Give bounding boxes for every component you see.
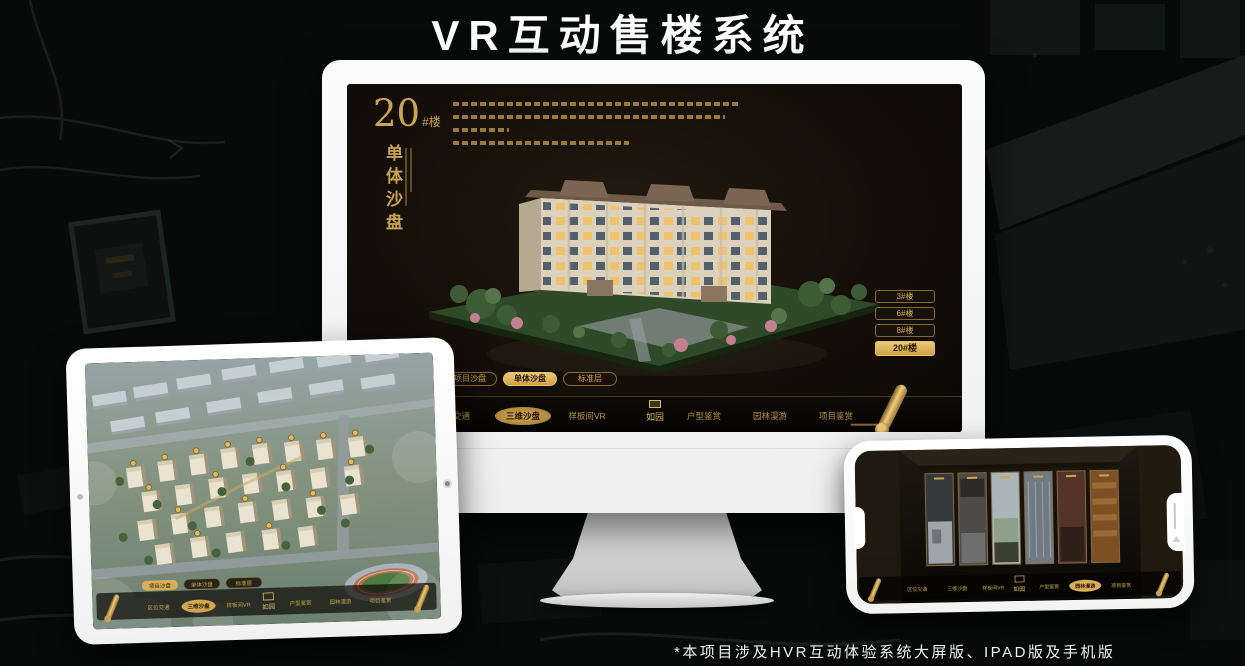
tablet-camera — [77, 494, 83, 500]
nav-item-3d-sandtable[interactable]: 三维沙盘 — [495, 407, 551, 425]
block-heading: 20#楼 — [373, 92, 441, 135]
page-title: VR互动售楼系统 — [0, 2, 1245, 63]
phone-nav-item-active[interactable]: 园林漫游 — [1075, 583, 1095, 590]
brand-logo: 如园 — [635, 400, 675, 423]
phone-nav-item[interactable]: 区位交通 — [907, 586, 927, 593]
footnote: *本项目涉及HVR互动体验系统大屏版、IPAD版及手机版 — [674, 641, 1115, 662]
phone-interior-view[interactable]: 区位交通 三维沙盘 样板间VR 如园 户型鉴赏 园林漫游 项目鉴赏 — [855, 445, 1184, 604]
floor-button-20[interactable]: 20#楼 — [875, 341, 935, 356]
tablet-screen: 项目沙盘 单体沙盘 标准层 区位交通 三维沙盘 样板间VR 如园 户型鉴赏 园林… — [85, 353, 441, 630]
brand-logo-text: 如园 — [646, 413, 664, 423]
description-text-lines — [453, 102, 745, 154]
poster: VR互动售楼系统 20#楼 单体沙盘 — [0, 0, 1245, 666]
phone-nav-item[interactable]: 项目鉴赏 — [1111, 582, 1131, 589]
scroll-icon — [877, 383, 909, 431]
phone-nav-item[interactable]: 样板间VR — [982, 584, 1004, 591]
nav-item-garden-roam[interactable]: 园林漫游 — [742, 407, 798, 425]
tablet-home-button[interactable] — [443, 479, 452, 488]
building-3d-model[interactable] — [419, 154, 889, 386]
nav-item-floorplans[interactable]: 户型鉴赏 — [676, 407, 732, 425]
ruyuan-seal-icon — [649, 400, 661, 408]
floor-button-3[interactable]: 3#楼 — [875, 290, 935, 303]
phone-nav-item[interactable]: 户型鉴赏 — [1039, 583, 1059, 590]
sand-table-tabs: 项目沙盘 单体沙盘 标准层 — [443, 372, 617, 386]
floor-selector: 3#楼 6#楼 8#楼 20#楼 — [875, 290, 939, 360]
block-subtitle-vertical: 单体沙盘 — [380, 144, 405, 236]
tablet-device: 项目沙盘 单体沙盘 标准层 区位交通 三维沙盘 样板间VR 如园 户型鉴赏 园林… — [65, 337, 462, 645]
phone-brand-logo: 如园 — [1013, 585, 1025, 593]
phone-nav-item[interactable]: 三维沙盘 — [947, 585, 967, 592]
nav-item-project-view[interactable]: 项目鉴赏 — [808, 407, 864, 425]
nav-item-showroom-vr[interactable]: 样板间VR — [559, 407, 615, 425]
block-number-suffix: #楼 — [422, 115, 441, 129]
decor-vertical-caption — [410, 148, 412, 192]
phone-device: 区位交通 三维沙盘 样板间VR 如园 户型鉴赏 园林漫游 项目鉴赏 — [843, 435, 1194, 615]
phone-screen: 区位交通 三维沙盘 样板间VR 如园 户型鉴赏 园林漫游 项目鉴赏 — [855, 445, 1184, 604]
tab-single-sandtable[interactable]: 单体沙盘 — [503, 372, 557, 386]
tab-standard-floor[interactable]: 标准层 — [563, 372, 617, 386]
tablet-aerial-view[interactable]: 项目沙盘 单体沙盘 标准层 区位交通 三维沙盘 样板间VR 如园 户型鉴赏 园林… — [85, 353, 441, 630]
phone-side-tab — [854, 507, 866, 549]
block-number: 20 — [373, 92, 420, 135]
monitor-stand-base — [540, 593, 774, 608]
floor-button-6[interactable]: 6#楼 — [875, 307, 935, 320]
tablet-brand-logo: 如园 — [262, 602, 275, 611]
decor-vertical-caption — [405, 148, 407, 206]
phone-notch — [1166, 493, 1184, 551]
floor-button-8[interactable]: 8#楼 — [875, 324, 935, 337]
